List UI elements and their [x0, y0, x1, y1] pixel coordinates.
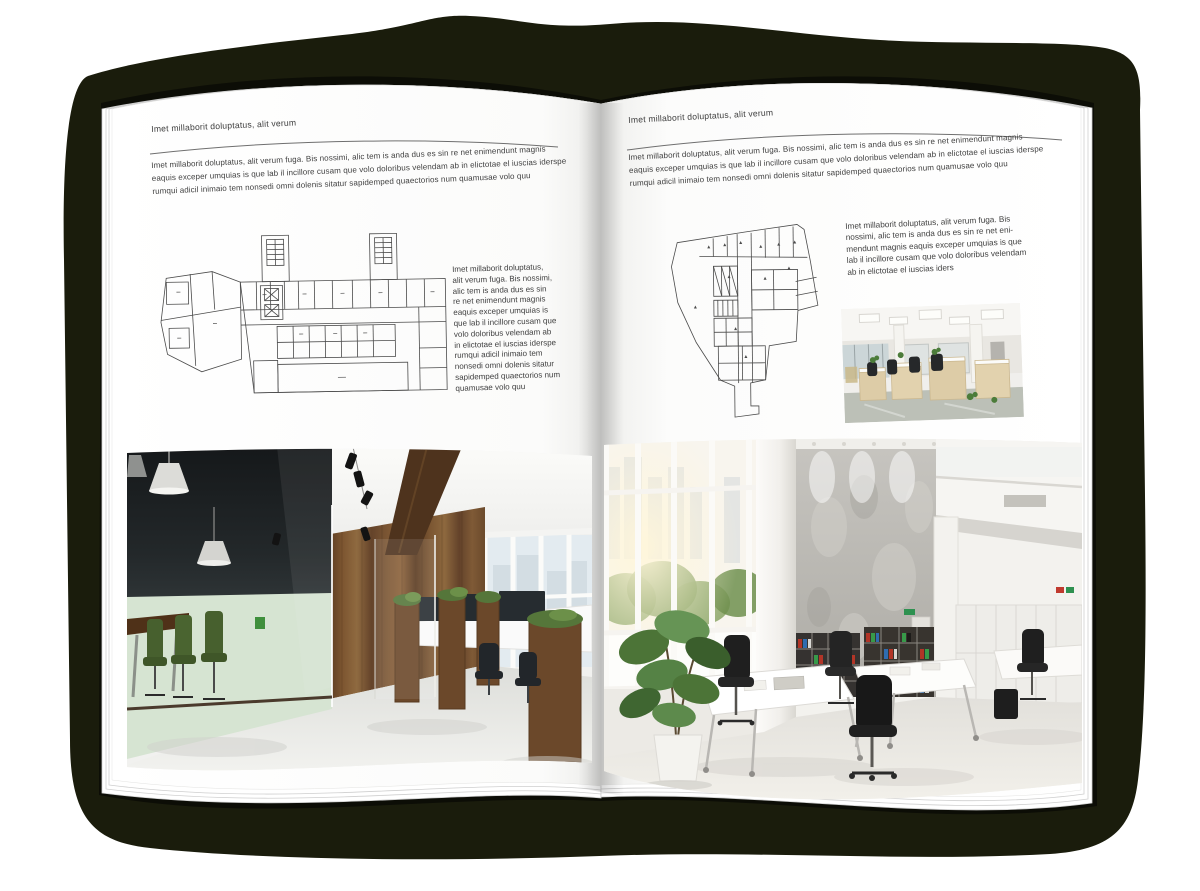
stair-tower-right: [369, 233, 397, 279]
magazine-mockup-stage: Imet millaborit doluptatus, alit verum I…: [0, 0, 1200, 891]
plan-outline: [671, 224, 819, 418]
floor-plan-right: [647, 217, 841, 421]
plan-annotation-marks: [176, 288, 435, 380]
office-photo-small: [841, 303, 1024, 423]
waste-bin: [994, 689, 1018, 719]
office-photo-wood-interior: [127, 447, 592, 783]
meeting-room-glass: [127, 447, 332, 759]
stair-tower-left: [261, 235, 289, 281]
vent-grille: [1004, 495, 1046, 507]
plan-interior: [699, 226, 819, 383]
right-page-side-text: Imet millaborit doluptatus, alit verum f…: [845, 213, 1027, 278]
plan-triangle-symbols: [693, 240, 797, 358]
office-photo-bright-interior: [604, 437, 1082, 801]
exit-sign-icon: [904, 609, 915, 615]
left-page-side-text: Imet millaborit doluptatus,alit verum fu…: [452, 262, 561, 394]
floor-plan-left: [155, 227, 450, 418]
main-wing: [240, 279, 447, 394]
downlight-glows: [809, 451, 915, 503]
green-bin: [255, 617, 265, 629]
small-lounge-chair: [845, 367, 858, 383]
left-annex: [160, 271, 242, 372]
